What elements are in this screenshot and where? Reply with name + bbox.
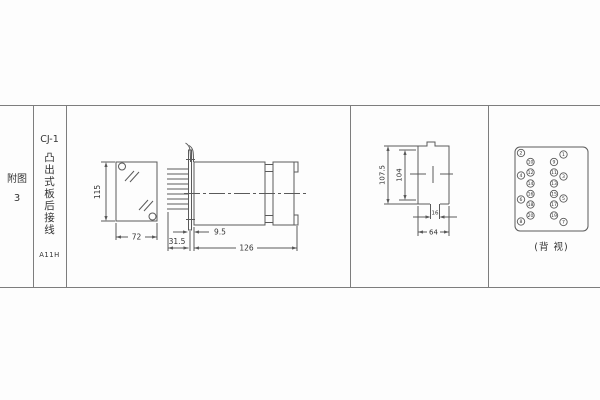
drawing-sheet: 115 72 [0,0,600,400]
svg-text:2: 2 [520,151,523,157]
svg-text:15: 15 [551,192,557,198]
latch-tab-bottom [265,216,273,223]
front-view-drawing [101,162,157,240]
dim-107-5 [386,146,389,204]
cutout-outline [384,142,449,219]
dim-115 [101,162,115,221]
latch-tab-top [265,165,273,172]
svg-text:5: 5 [562,196,565,202]
side-view-drawing [167,143,308,251]
panel-cutout-drawing [384,142,457,236]
svg-text:12: 12 [528,170,534,176]
mounting-hole-top-left [119,163,126,170]
cutout-center-mark [410,166,453,183]
svg-text:1: 1 [562,152,565,158]
technical-drawing: 115 72 [0,0,600,400]
svg-text:8: 8 [520,219,523,225]
hatch-marks [125,171,153,211]
figure-number-label: 附图3 [7,171,27,208]
code-label: A11H [33,251,66,259]
svg-text:17: 17 [551,202,557,208]
terminal-layout: 2 4 6 8 10 12 14 16 18 20 9 11 13 15 17 … [515,147,588,231]
svg-text:3: 3 [562,174,565,180]
front-width-label: 72 [132,233,142,242]
svg-text:16: 16 [528,192,534,198]
side-body-length-label: 126 [239,244,254,253]
terminal-pins [167,169,189,209]
mounting-type-label: 凸出式板后接线 [43,152,56,236]
side-offset-label: 9.5 [214,228,226,237]
rear-tab-bottom [294,215,298,225]
rear-tab-top [294,162,298,172]
svg-text:11: 11 [551,170,557,176]
svg-text:20: 20 [528,213,534,219]
svg-text:18: 18 [528,202,534,208]
cutout-width-label: 64 [429,229,438,237]
model-label: CJ-1 [33,134,66,145]
front-height-label: 115 [93,185,102,200]
svg-text:4: 4 [520,173,523,179]
terminal-circles [517,149,567,225]
dim-9-5 [173,230,209,233]
side-pin-length-label: 31.5 [169,237,186,246]
svg-text:13: 13 [551,181,557,187]
rear-view-caption: (背 视) [513,239,590,253]
cutout-inner-height-label: 104 [396,168,404,182]
svg-text:14: 14 [528,181,534,187]
svg-text:6: 6 [520,197,523,203]
cutout-outer-height-label: 107.5 [379,165,387,185]
svg-text:19: 19 [551,213,557,219]
svg-text:9: 9 [553,160,556,166]
table-frame [0,106,600,288]
svg-text:10: 10 [528,160,534,166]
front-panel-outline [116,162,157,221]
cutout-slot-width-label: 16 [432,211,439,217]
svg-text:7: 7 [562,220,565,226]
mounting-hole-bottom-right [149,213,156,220]
